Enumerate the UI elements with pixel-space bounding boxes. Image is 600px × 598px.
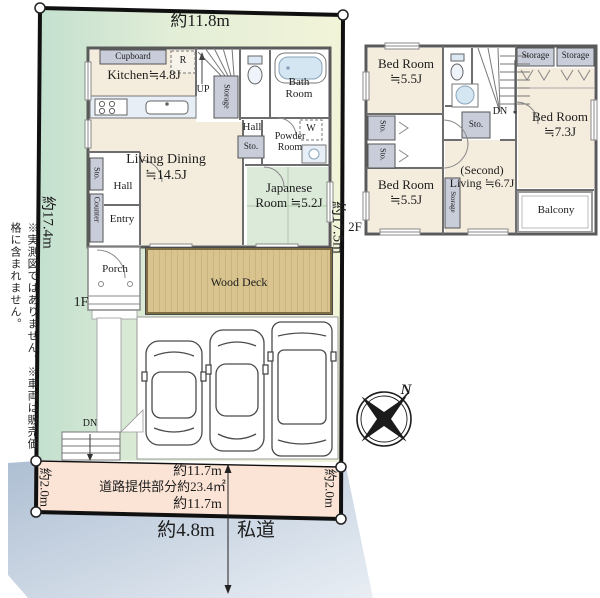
stairs-storage-icon	[214, 76, 238, 118]
disclaimer-notes: ※実測図ではありません。※車両は販売価格に含まれません。	[6, 222, 40, 452]
floorplan-page: 約11.8m 約17.4m 約17.5m 約11.7m 道路提供部分約23.4㎡…	[0, 0, 600, 598]
balcony-area	[518, 192, 592, 232]
sto-b-icon	[368, 144, 395, 168]
compass-icon	[357, 392, 411, 446]
washer-icon	[300, 120, 322, 140]
hall-storage-icon	[238, 136, 264, 158]
vanity-icon	[302, 145, 326, 163]
fridge-icon	[171, 51, 195, 73]
toilet2-icon	[451, 54, 464, 80]
wood-deck-surface	[146, 248, 332, 314]
disclaimer-line1: ※実測図ではありません。	[26, 222, 38, 366]
entry-storage-icon	[90, 158, 103, 190]
storage-b-icon	[557, 48, 594, 66]
storage-vert-icon	[445, 178, 460, 228]
bathtub-icon	[275, 53, 326, 83]
entry-counter-icon	[90, 194, 103, 242]
floor2-plan	[363, 43, 597, 235]
road-provision-strip	[36, 461, 341, 519]
car-icon-3	[268, 322, 336, 456]
car-icon-1	[142, 341, 206, 445]
sto-mid-icon	[462, 112, 490, 138]
storage-a-icon	[517, 48, 554, 66]
site-steps-icon	[62, 432, 120, 461]
toilet-icon	[248, 56, 262, 84]
sto-a-icon	[368, 116, 395, 140]
kitchen-counter-icon	[90, 96, 196, 118]
porch-icon	[88, 247, 140, 310]
basin-icon	[452, 84, 478, 107]
cupboard-icon	[100, 50, 166, 64]
car-icon-2	[206, 330, 268, 451]
